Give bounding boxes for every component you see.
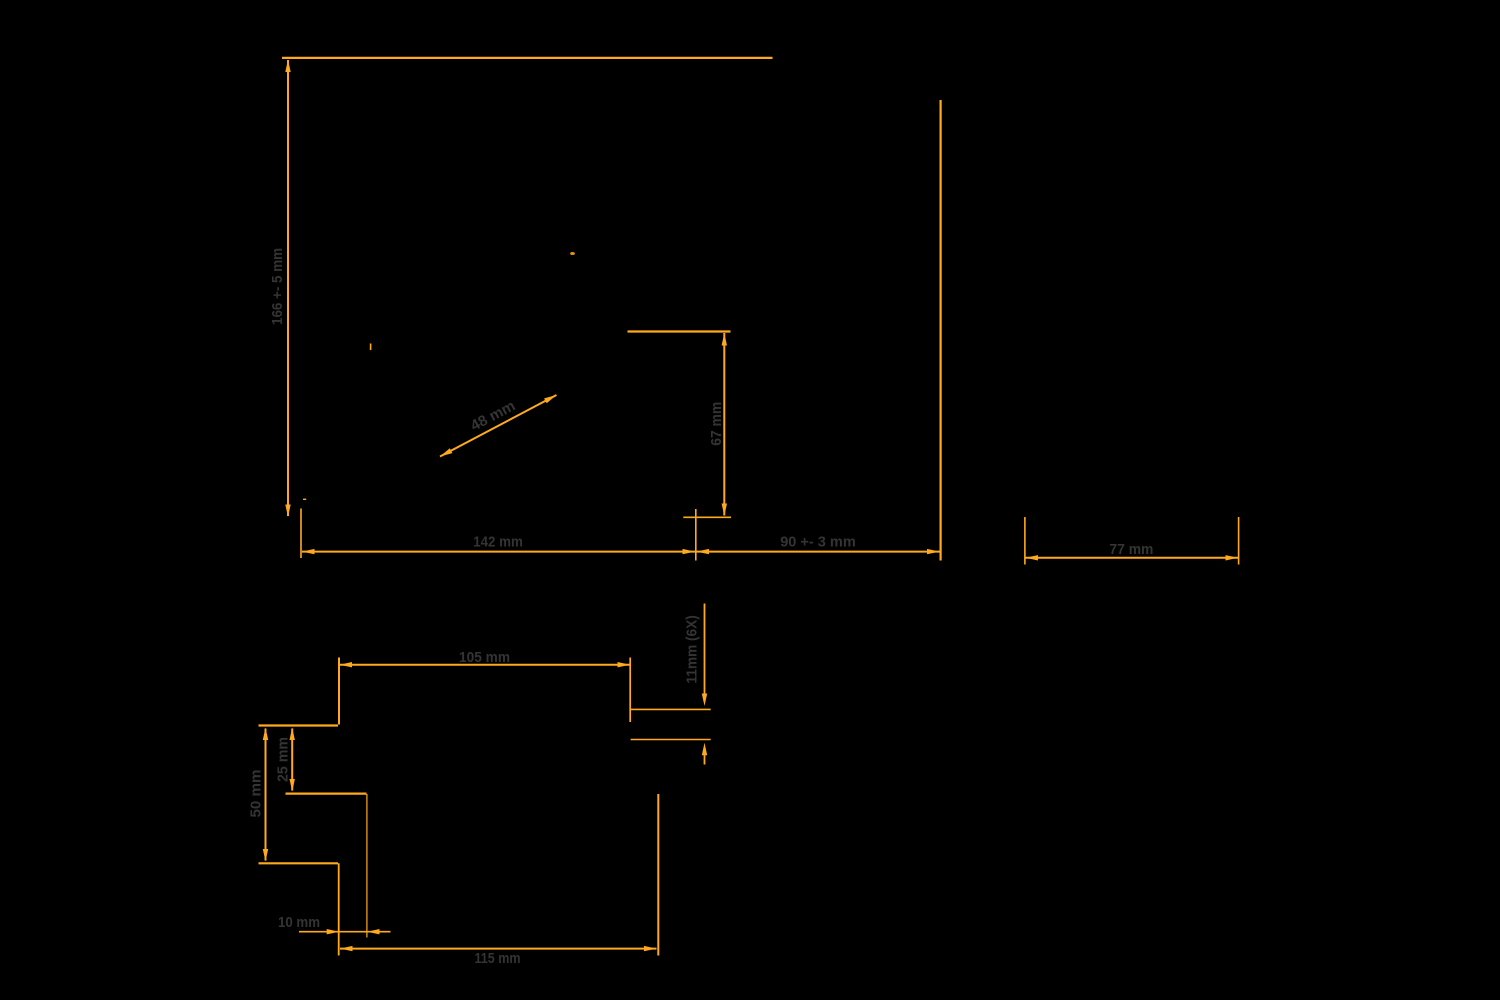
- svg-text:105 mm: 105 mm: [459, 649, 510, 666]
- svg-text:90 +- 3 mm: 90 +- 3 mm: [780, 533, 856, 550]
- svg-text:115 mm: 115 mm: [475, 950, 521, 967]
- svg-text:50 mm: 50 mm: [248, 770, 265, 818]
- svg-text:142 mm: 142 mm: [473, 533, 523, 550]
- svg-text:10 mm: 10 mm: [278, 914, 320, 931]
- svg-text:166 +- 5 mm: 166 +- 5 mm: [269, 248, 286, 325]
- svg-text:67 mm: 67 mm: [708, 402, 725, 446]
- svg-text:25 mm: 25 mm: [275, 737, 292, 782]
- svg-text:11mm (6X): 11mm (6X): [684, 615, 701, 684]
- svg-text:77 mm: 77 mm: [1109, 541, 1153, 558]
